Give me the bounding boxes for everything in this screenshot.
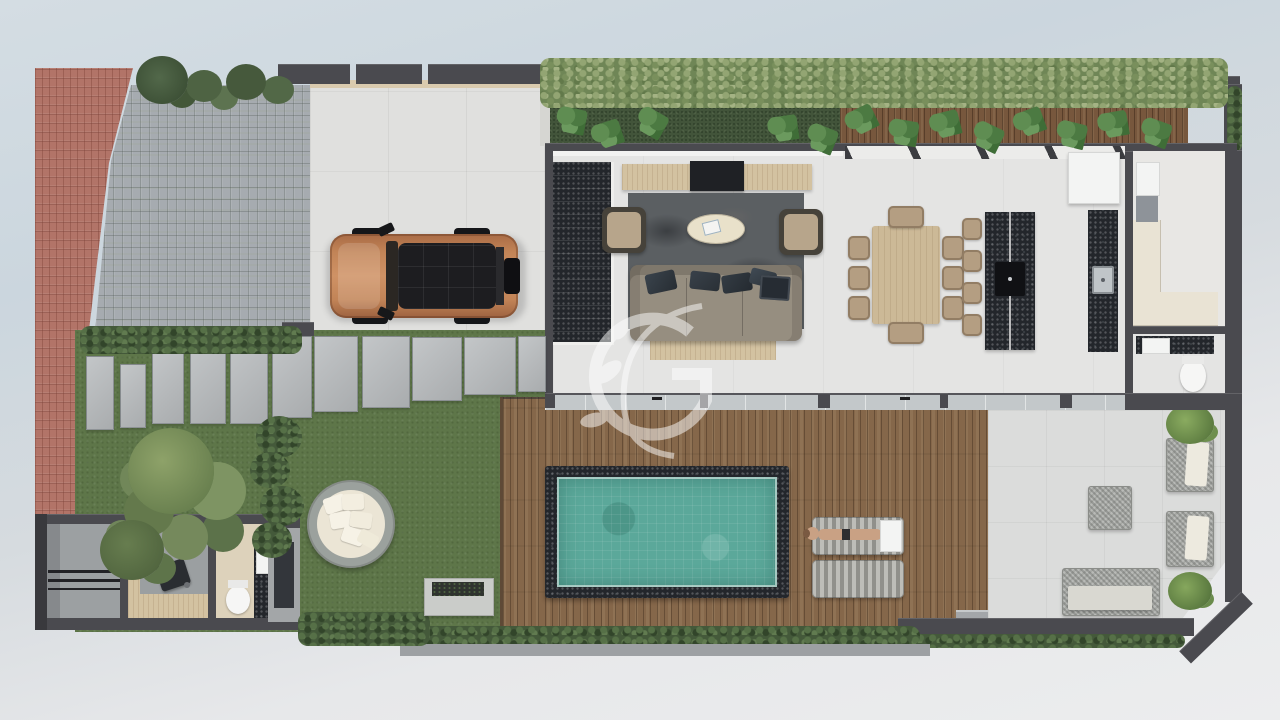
armchair-left-cushion <box>607 212 641 248</box>
monstera-plant <box>1096 110 1130 140</box>
dining-chair <box>848 266 870 290</box>
pantry-appliance-grey <box>1136 196 1158 222</box>
grill-wheel <box>184 582 190 588</box>
planter-box-opening <box>432 582 484 596</box>
garden-tree-large <box>128 428 214 514</box>
rear-hedge <box>540 58 1228 108</box>
dining-chair <box>888 206 924 228</box>
dining-chair <box>888 322 924 344</box>
glass-wall-post <box>1060 393 1072 408</box>
glass-wall-post <box>545 393 555 408</box>
patio-bench-seat <box>1068 586 1152 610</box>
monstera-plant <box>886 118 920 148</box>
glass-wall-post <box>940 393 948 408</box>
stepping-stone <box>518 336 546 392</box>
patio-armchair-bottom-cushion <box>1184 515 1209 560</box>
bar-stool <box>962 250 982 272</box>
dining-chair <box>942 236 964 260</box>
fridge <box>1068 152 1120 204</box>
car-hood-sheen <box>338 243 380 309</box>
garden-bottom-shrubs <box>298 612 430 646</box>
sun-lounger-empty <box>812 560 904 598</box>
pool-water <box>557 477 777 587</box>
pantry-appliance-white <box>1136 162 1160 196</box>
floor-plan-render <box>0 0 1280 720</box>
dining-chair <box>848 236 870 260</box>
patio-armchair-top-cushion <box>1184 441 1209 486</box>
cobblestone-entry-court <box>95 85 310 332</box>
glass-wall-post <box>818 393 830 408</box>
kitchen-faucet <box>1101 278 1105 282</box>
bathroom-partition-wall <box>1133 326 1225 334</box>
cooktop-knob <box>1008 277 1012 281</box>
door-handle <box>900 397 910 400</box>
sunbather-swimsuit <box>842 529 850 540</box>
sunbather-hair <box>803 529 810 538</box>
car-roof <box>398 243 496 309</box>
laptop <box>759 275 791 301</box>
watermark-logo <box>556 286 742 462</box>
bottom-overgrowth-right <box>905 634 1185 648</box>
car-rear-window <box>496 247 504 305</box>
dining-chair <box>942 296 964 320</box>
garden-bush <box>250 452 290 488</box>
boundary-wall-segment-b <box>356 64 422 84</box>
garden-tree-small <box>100 520 164 580</box>
fern-strip-above-path <box>80 326 302 354</box>
daybed-cushion <box>342 494 365 511</box>
patio-coffee-table <box>1088 486 1132 530</box>
patio-shrub-top <box>1166 404 1214 444</box>
stepping-stone <box>412 337 462 401</box>
outdoor-toilet-tank <box>228 580 248 588</box>
dining-chair <box>848 296 870 320</box>
stepping-stone <box>86 356 114 430</box>
deck-tray <box>880 520 902 552</box>
stepping-stone <box>190 342 226 424</box>
stepping-stone <box>152 350 184 424</box>
outdoor-toilet-bowl <box>226 586 250 614</box>
monstera-plant <box>766 114 799 143</box>
garden-bush <box>260 486 304 526</box>
bar-stool <box>962 314 982 336</box>
toilet-bowl <box>1180 360 1206 392</box>
bathroom-exterior-wall <box>1125 393 1242 409</box>
service-grate <box>48 570 120 590</box>
bar-stool <box>962 218 982 240</box>
car-windshield <box>386 241 398 311</box>
boundary-wall-segment-c <box>428 64 548 84</box>
garden-bush <box>256 416 302 458</box>
bottom-path-band <box>400 644 930 656</box>
bathroom-sink <box>1142 338 1170 354</box>
entry-ferns <box>136 56 188 104</box>
patio-shrub-bottom <box>1168 572 1212 610</box>
pantry-partition-wall <box>1125 151 1133 402</box>
pantry-counter-horizontal <box>1133 292 1218 326</box>
stepping-stone <box>362 336 410 408</box>
bar-stool <box>962 282 982 304</box>
side-gate <box>35 514 47 630</box>
armchair-right-cushion <box>784 214 818 250</box>
stepping-stone <box>314 336 358 412</box>
house-inner-wall-lining <box>553 151 843 156</box>
stepping-stone <box>120 364 146 428</box>
car-spare-wheel <box>504 258 520 294</box>
service-partition-b <box>208 524 216 618</box>
dining-table <box>872 226 940 324</box>
garden-bush <box>252 522 292 558</box>
boundary-wall-segment-a <box>278 64 350 84</box>
toilet-tank <box>1182 356 1204 364</box>
stepping-stone <box>464 337 516 395</box>
dining-chair <box>942 266 964 290</box>
deck-bottom-hedge <box>420 626 920 646</box>
tv <box>690 161 744 191</box>
sunbather-body <box>818 529 882 540</box>
